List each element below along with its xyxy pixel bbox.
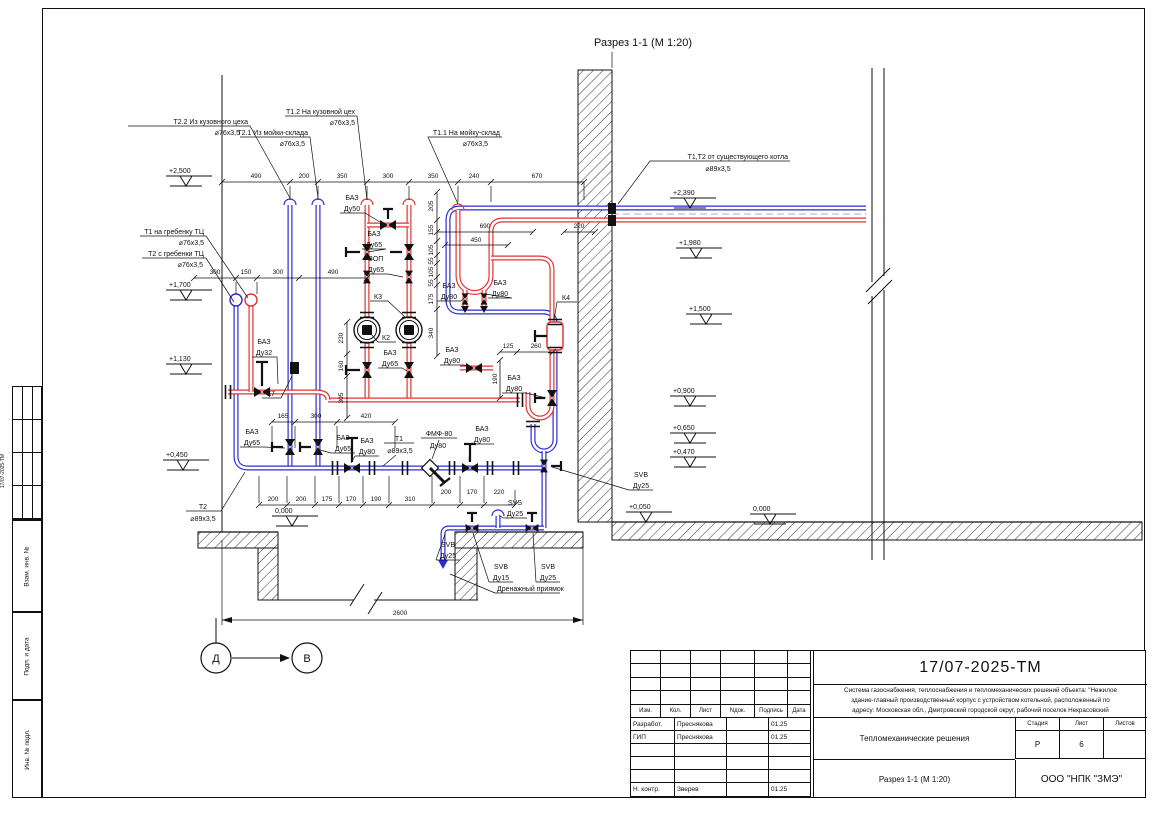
valve-label: БАЗ (245, 429, 258, 436)
elevation-label: +0,470 (673, 449, 695, 456)
valve-label: БАЗ (367, 231, 380, 238)
equipment-tag: К7 (267, 391, 275, 398)
valve-size: Ду80 (441, 294, 457, 301)
sheet-number: 6 (1059, 731, 1103, 759)
valve-size: Ду32 (256, 350, 272, 357)
valve-baz50 (380, 220, 396, 230)
dim-label: 190 (371, 496, 382, 503)
dim-label: 200 (441, 489, 452, 496)
valve-label: SVB (494, 564, 508, 571)
dim-label: 260 (531, 343, 542, 350)
elevation-label: +1,980 (679, 240, 701, 247)
doc-number: 17/07-2025-ТМ (813, 651, 1147, 685)
col-list: Лист (691, 705, 721, 718)
valve-label: БАЗ (336, 435, 349, 442)
dim-label: 190 (492, 373, 499, 384)
valve-size: Ду80 (444, 358, 460, 365)
valve-label: БАЗ (257, 339, 270, 346)
pipe-label: ФМФ-80 (426, 431, 453, 438)
project-description: Система газоснабжения, теплоснабжения и … (813, 685, 1147, 718)
dim-label: 300 (311, 413, 322, 420)
valve-label: SVS (508, 500, 522, 507)
valve-size: Ду80 (506, 386, 522, 393)
valve-size: Ду15 (493, 575, 509, 582)
valve-label: БАЗ (493, 280, 506, 287)
elevation-label: +2,390 (673, 190, 695, 197)
dim-label: 200 (299, 173, 310, 180)
sidebar-mini-table (12, 386, 42, 520)
dim-label: 170 (346, 496, 357, 503)
sidebar-box-podp: Подп. и дата (12, 612, 42, 700)
valve-size: Ду65 (368, 267, 384, 274)
dim-label: 105 (428, 266, 435, 277)
dim-label: 175 (322, 496, 333, 503)
valve-size: Ду80 (474, 437, 490, 444)
col-kol: Кол. (661, 705, 691, 718)
dim-label: 350 (428, 173, 439, 180)
dim-label: 670 (532, 173, 543, 180)
pipe-size: ⌀76х3,5 (330, 120, 355, 127)
elevation-label: +0,450 (166, 452, 188, 459)
valve-size: Ду65 (366, 242, 382, 249)
pipe-size: ⌀89х3,5 (387, 448, 412, 455)
dim-label: 220 (494, 489, 505, 496)
valve-size: Ду65 (382, 361, 398, 368)
pipe-end-face-blue (230, 294, 242, 306)
dim-label: 350 (337, 173, 348, 180)
valve-label: БАЗ (442, 283, 455, 290)
dim-label: 240 (469, 173, 480, 180)
section-title: Разрез 1-1 (М 1:20) (594, 37, 692, 49)
dim-label: 450 (471, 237, 482, 244)
view-markers: Д В (201, 618, 322, 673)
pipe-label: Т2.1 Из мойки-склада (237, 129, 308, 137)
sheet-count (1103, 731, 1146, 759)
dim-label: 490 (328, 269, 339, 276)
dim-label: 220 (574, 223, 585, 230)
elevation-label: +0,650 (673, 425, 695, 432)
dim-label: 200 (296, 496, 307, 503)
valve-size: Ду65 (244, 440, 260, 447)
pipe-label: Т1 (395, 436, 403, 443)
far-wall-break (866, 68, 892, 560)
valve-label: ЗОП (369, 256, 384, 263)
stage-value: Р (1015, 731, 1059, 759)
valve-size: Ду80 (359, 449, 375, 456)
elevation-label: +1,700 (169, 282, 191, 289)
valve-size: Ду65 (335, 446, 351, 453)
elevation-label: +1,500 (689, 306, 711, 313)
dim-label: 230 (338, 332, 345, 343)
dim-label: 300 (383, 173, 394, 180)
valve-size: Ду25 (507, 511, 523, 518)
col-ndok: Nдок. (721, 705, 755, 718)
room-wall-section (578, 70, 612, 522)
elevation-label: +0,900 (673, 388, 695, 395)
pipe-size: ⌀76х3,5 (179, 240, 204, 247)
dim-label: 160 (338, 360, 345, 371)
dim-label: 155 (428, 224, 435, 235)
dim-label: 55 (428, 257, 435, 265)
valve-size: Ду50 (344, 206, 360, 213)
col-izm: Изм. (631, 705, 661, 718)
dim-label: 340 (428, 327, 435, 338)
valve-label: БАЗ (360, 438, 373, 445)
valve-label: БАЗ (445, 347, 458, 354)
pipe-size: ⌀89х3,5 (705, 166, 730, 173)
dim-label: 200 (268, 496, 279, 503)
dim-label: 175 (428, 293, 435, 304)
drain-funnel (438, 560, 448, 569)
revision-table: Изм. Кол. Лист Nдок. Подпись Дата (631, 651, 813, 718)
valve-label: SVB (541, 564, 555, 571)
valve-label: SVB (441, 542, 455, 549)
elevation-label: +2,500 (169, 168, 191, 175)
dim-label: 125 (503, 343, 514, 350)
pipe-label: Т2 с гребенки ТЦ (148, 250, 205, 258)
pump-k3 (396, 317, 422, 343)
signature-table: Разработ.Преснякова01.25 ГИППреснякова01… (631, 718, 813, 797)
dim-label: 170 (467, 489, 478, 496)
pipe-size: ⌀76х3,5 (280, 141, 305, 148)
elevation-label: +0,050 (629, 504, 651, 511)
axis-marker-v: В (303, 653, 310, 665)
equipment-tag: К3 (374, 294, 382, 301)
dim-label: 690 (480, 223, 491, 230)
pit-wall-right (455, 548, 477, 600)
col-data: Дата (788, 705, 811, 718)
vessel-k4 (547, 322, 563, 350)
col-podpis: Подпись (755, 705, 788, 718)
valve-size: Ду25 (633, 483, 649, 490)
sidebar-box-vzam: Взам. инв. № (12, 520, 42, 612)
dim-label: 165 (278, 413, 289, 420)
elevation-label: +1,130 (169, 356, 191, 363)
dim-label: 490 (251, 173, 262, 180)
company-name: ООО "НПК "ЗМЭ" (1015, 760, 1147, 798)
pipe-label: Т1.2 На кузовной цех (286, 108, 356, 116)
valve-label: БАЗ (507, 375, 520, 382)
pipe-label: Т1 на гребенку ТЦ (144, 228, 205, 236)
pipe-size: Ду80 (430, 443, 446, 450)
elevation-label: 0,000 (275, 508, 293, 515)
pump-k2 (354, 317, 380, 343)
floor-right (455, 532, 583, 548)
equipment-tag: К2 (382, 335, 390, 342)
dim-label: 420 (361, 413, 372, 420)
sidebar-doc-number: 17/07-2025-ТМ (0, 454, 6, 488)
dim-label: 105 (428, 244, 435, 255)
pipes-supply-red (228, 199, 866, 418)
pipe-label: Т2.2 Из кузовного цеха (173, 119, 248, 126)
pipe-size: ⌀76х3,5 (178, 262, 203, 269)
pit-wall-left (258, 548, 278, 600)
title-block: Изм. Кол. Лист Nдок. Подпись Дата Разраб… (630, 650, 1146, 798)
sidebar-box-inv: Инв. № подл. (12, 700, 42, 798)
pit-bottom (258, 584, 478, 614)
valve-label: БАЗ (345, 195, 358, 202)
pipe-size: ⌀89х3,5 (190, 516, 215, 523)
stage-table: Стадия Лист Листов Р 6 (1015, 718, 1147, 760)
axis-marker-d: Д (212, 653, 220, 665)
dim-label: 305 (338, 392, 345, 403)
arrow-icon (280, 654, 290, 662)
project-name: Тепломеханические решения (813, 718, 1015, 760)
dim-label: 150 (241, 269, 252, 276)
dim-label: 2600 (393, 610, 408, 617)
dim-label: 310 (405, 496, 416, 503)
floor-left (198, 532, 278, 548)
elevation-label: 0,000 (753, 506, 771, 513)
drawing-sheet: 490 200 350 300 350 240 670 300 150 300 … (0, 0, 1152, 813)
pipe-label: Т2 (199, 504, 207, 511)
pipe-size: ⌀76х3,5 (463, 141, 488, 148)
floor-exterior (612, 522, 1142, 540)
dim-label: 300 (273, 269, 284, 276)
valve-label: SVB (634, 472, 648, 479)
dim-label: 55 (428, 279, 435, 287)
pipe-size: ⌀76х3,5 (215, 130, 240, 137)
pipe-label: Т1.1 На мойку-склад (433, 129, 500, 137)
view-name: Разрез 1-1 (М 1:20) (813, 760, 1015, 798)
actuator (290, 362, 299, 374)
pit-label: Дренажный приямок (497, 585, 565, 593)
equipment-tag: К4 (562, 295, 570, 302)
valve-label: БАЗ (383, 350, 396, 357)
valve-label: БАЗ (475, 426, 488, 433)
pipe-label: Т1,Т2 от существующего котла (688, 154, 789, 161)
valve-size: Ду25 (540, 575, 556, 582)
valve-size: Ду25 (440, 553, 456, 560)
valve-size: Ду80 (492, 291, 508, 298)
dim-label: 205 (428, 200, 435, 211)
